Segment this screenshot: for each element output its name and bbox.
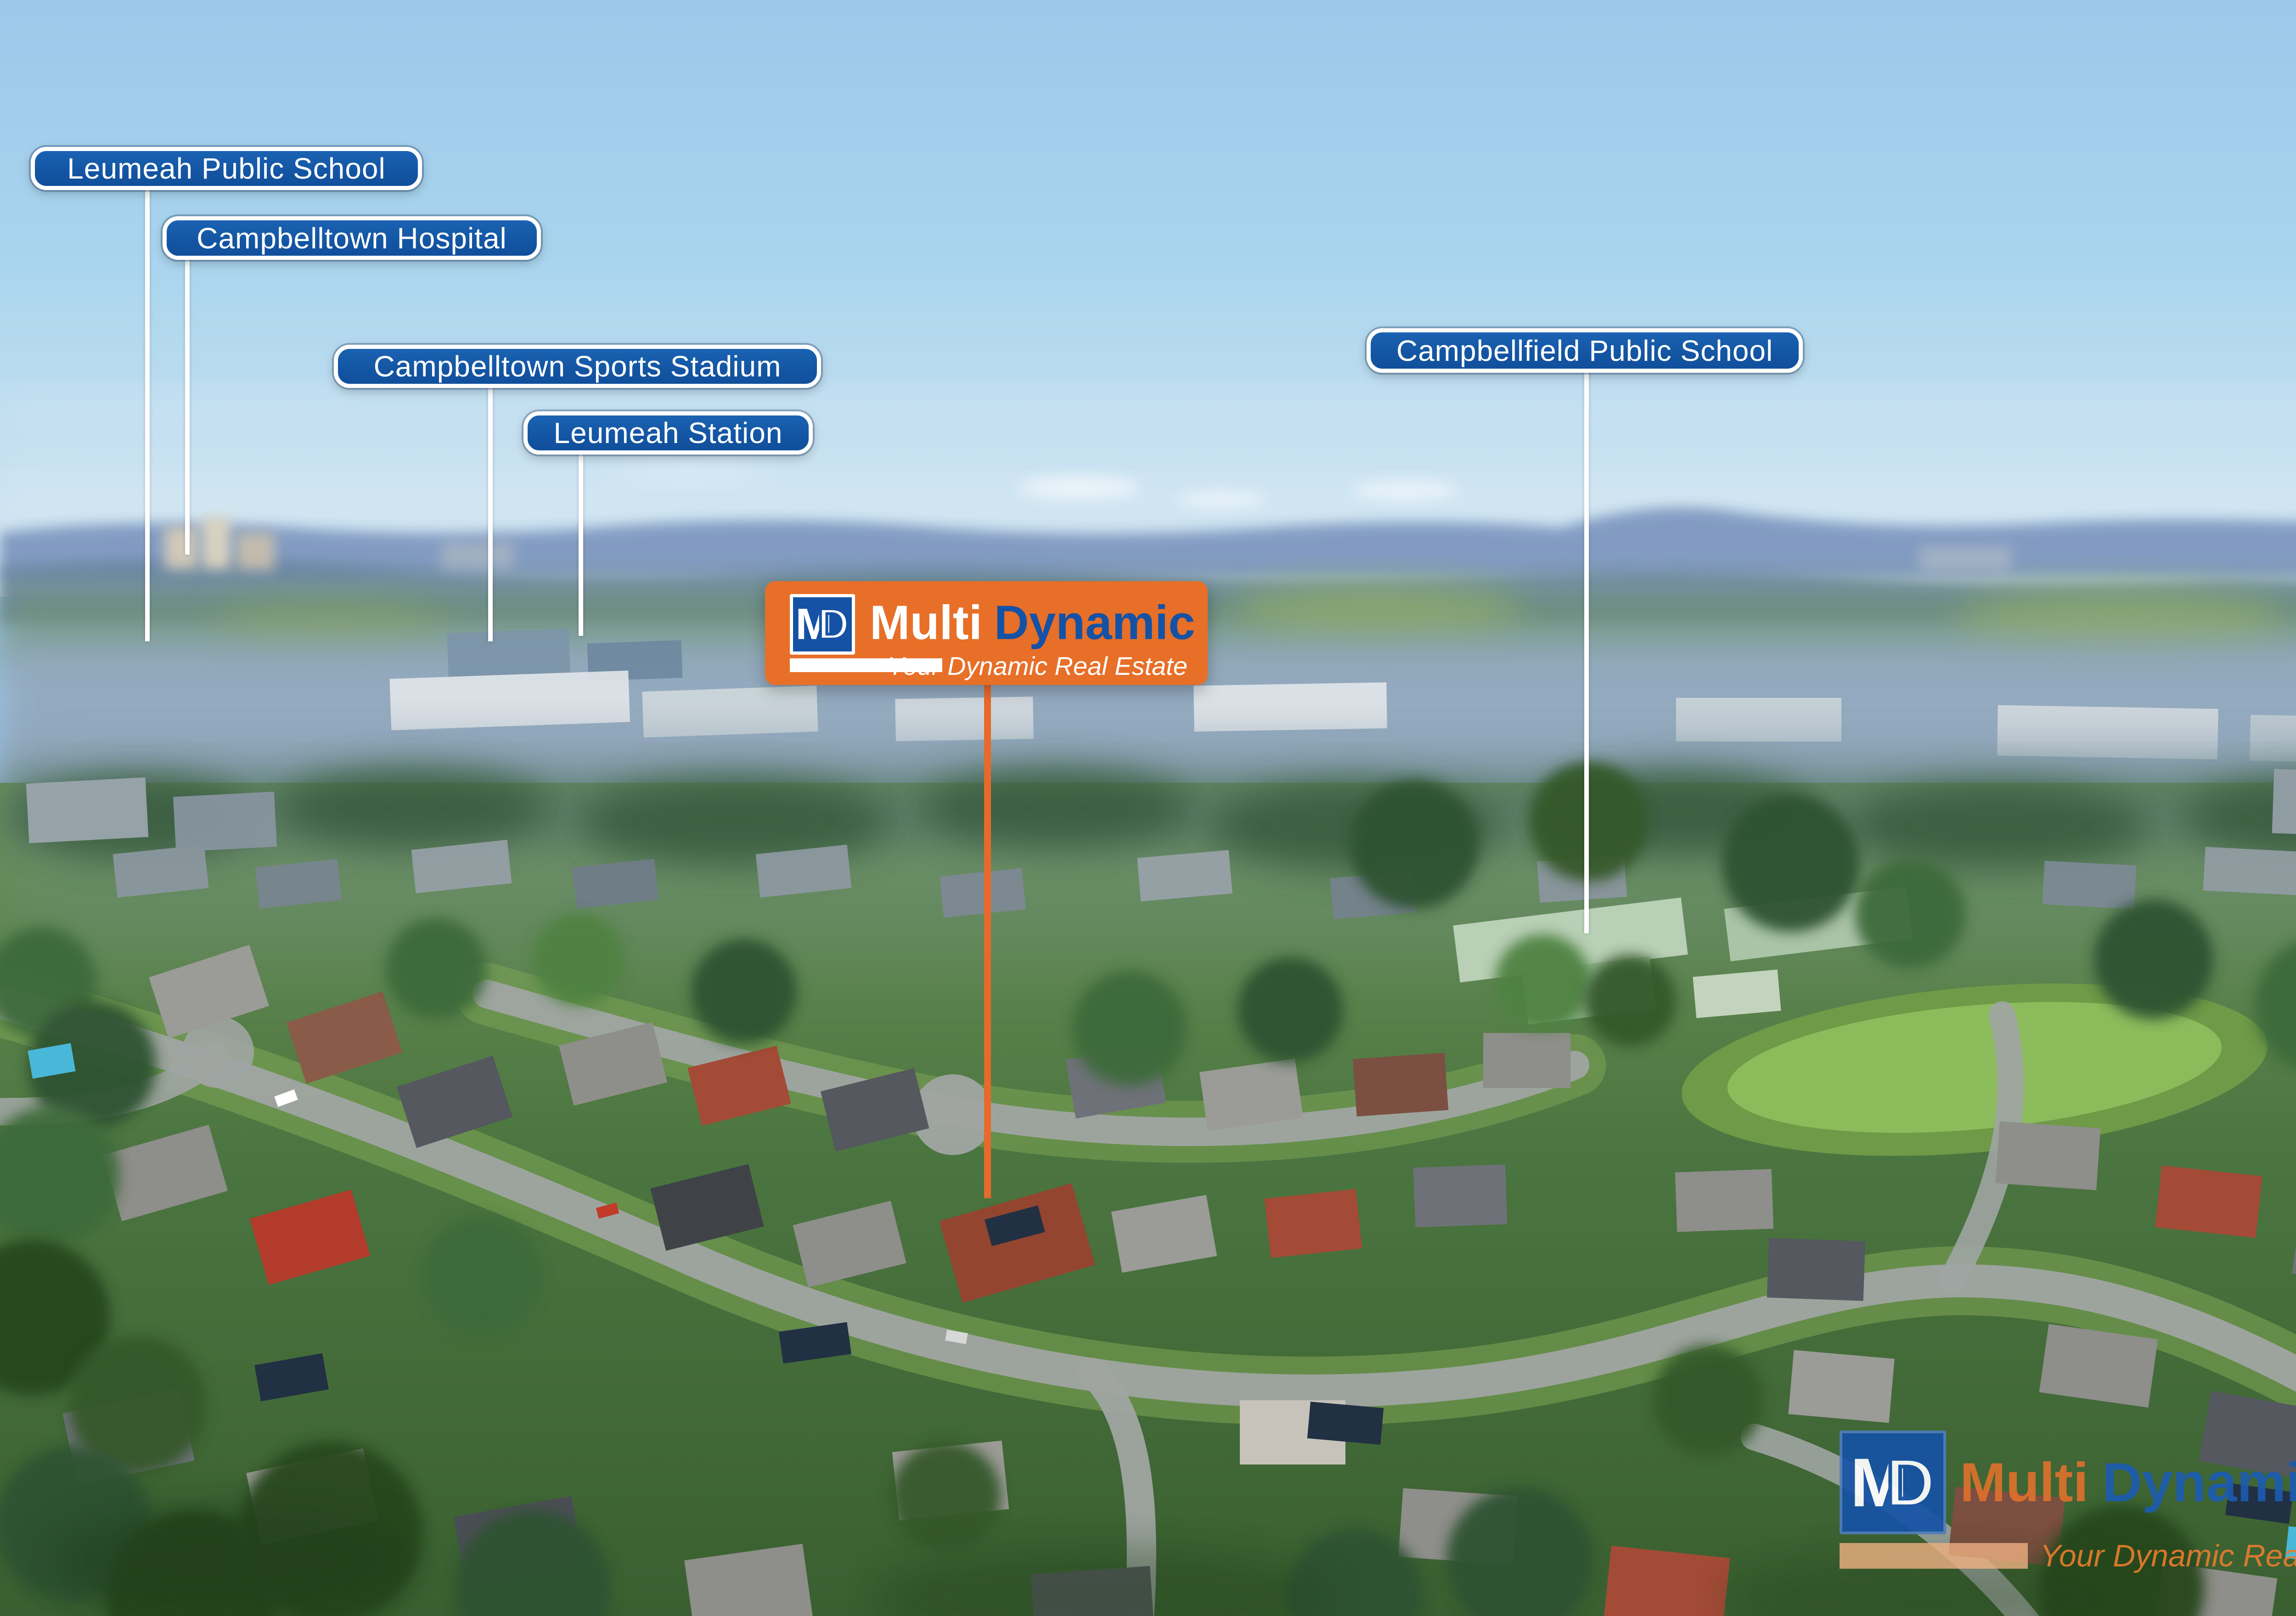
map-label-leumeah-public-school: Leumeah Public School <box>31 147 422 190</box>
map-label-text: Leumeah Public School <box>67 151 385 185</box>
watermark-brand-name: Multi Dynamic <box>1960 1451 2296 1514</box>
agency-banner: MD Multi Dynamic Your Dynamic Real Estat… <box>765 581 1208 685</box>
leader-line-campbelltown-hospital <box>185 257 190 555</box>
map-label-campbelltown-hospital: Campbelltown Hospital <box>163 216 541 260</box>
map-label-campbellfield-public-school: Campbellfield Public School <box>1367 328 1803 373</box>
md-logo-icon: MD <box>790 594 855 655</box>
map-label-text: Campbelltown Hospital <box>197 221 507 255</box>
watermark-md-logo-icon: MD <box>1840 1431 1946 1534</box>
brand-name: Multi Dynamic <box>870 590 1195 656</box>
watermark-brand-row: MD Multi Dynamic <box>1840 1431 2296 1534</box>
md-logo-letter-d: D <box>817 602 849 646</box>
watermark-brand-dynamic: Dynamic <box>2102 1451 2296 1514</box>
leader-line-leumeah-public-school <box>145 187 150 641</box>
watermark-tagline: Your Dynamic Real Estate <box>2040 1538 2296 1574</box>
map-label-campbelltown-sports-stadium: Campbelltown Sports Stadium <box>334 345 821 388</box>
banner-tagline: Your Dynamic Real Estate <box>887 651 1187 681</box>
watermark-brand-multi: Multi <box>1960 1451 2088 1514</box>
watermark-md-letter-d: D <box>1885 1448 1935 1517</box>
aerial-scene: Leumeah Public School Campbelltown Hospi… <box>0 0 2296 1616</box>
watermark-tagline-row: Your Dynamic Real Estate <box>1840 1538 2296 1574</box>
sky <box>0 0 2296 597</box>
leader-line-leumeah-station <box>579 452 583 636</box>
property-pointer-line <box>984 682 991 1198</box>
leader-line-campbelltown-sports-stadium <box>488 386 493 641</box>
map-label-text: Leumeah Station <box>554 416 783 450</box>
map-label-text: Campbelltown Sports Stadium <box>374 349 782 383</box>
map-label-text: Campbellfield Public School <box>1396 334 1773 368</box>
watermark-underline-bar <box>1840 1543 2028 1569</box>
brand-name-dynamic: Dynamic <box>994 595 1195 651</box>
map-label-leumeah-station: Leumeah Station <box>523 411 813 454</box>
leader-line-campbellfield-public-school <box>1584 370 1589 933</box>
agency-watermark: MD Multi Dynamic Your Dynamic Real Estat… <box>1840 1431 2296 1574</box>
brand-name-multi: Multi <box>870 595 982 651</box>
